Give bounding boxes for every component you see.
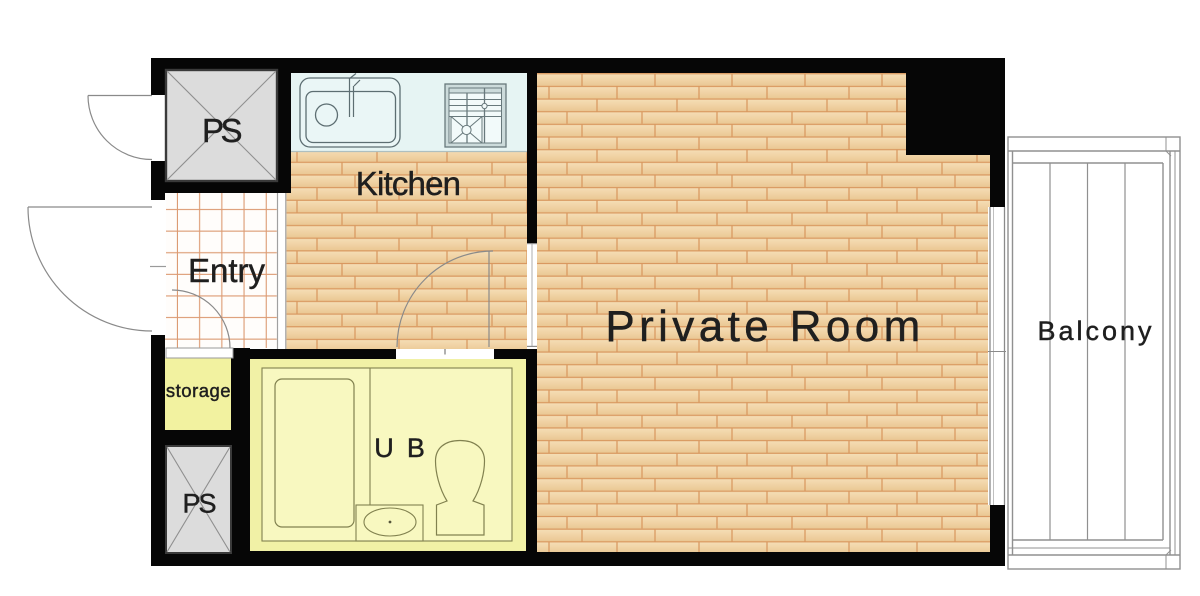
svg-text:Kitchen: Kitchen <box>356 165 460 202</box>
svg-text:Balcony: Balcony <box>1037 316 1154 346</box>
svg-text:storage: storage <box>166 380 231 401</box>
svg-text:U B: U B <box>374 433 427 463</box>
svg-text:Entry: Entry <box>188 252 266 289</box>
svg-text:Private Room: Private Room <box>605 302 924 351</box>
svg-text:PS: PS <box>202 112 242 149</box>
svg-text:PS: PS <box>182 489 215 519</box>
